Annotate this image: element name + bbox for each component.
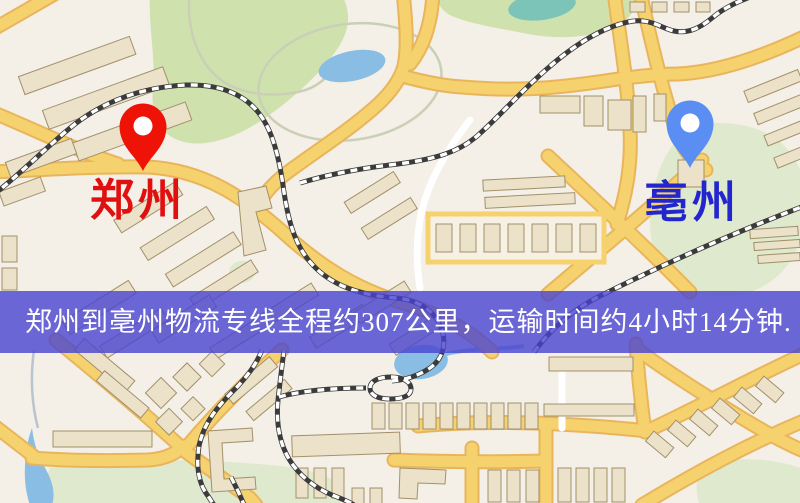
map-screenshot: 郑州 亳州 郑州到亳州物流专线全程约307公里，运输时间约4小时14分钟.	[0, 0, 800, 503]
origin-label: 郑州	[90, 176, 186, 225]
destination-label: 亳州	[644, 178, 740, 227]
map-canvas[interactable]: 郑州 亳州	[0, 0, 800, 503]
compound-strip	[428, 214, 604, 262]
route-info-banner: 郑州到亳州物流专线全程约307公里，运输时间约4小时14分钟.	[0, 291, 800, 353]
